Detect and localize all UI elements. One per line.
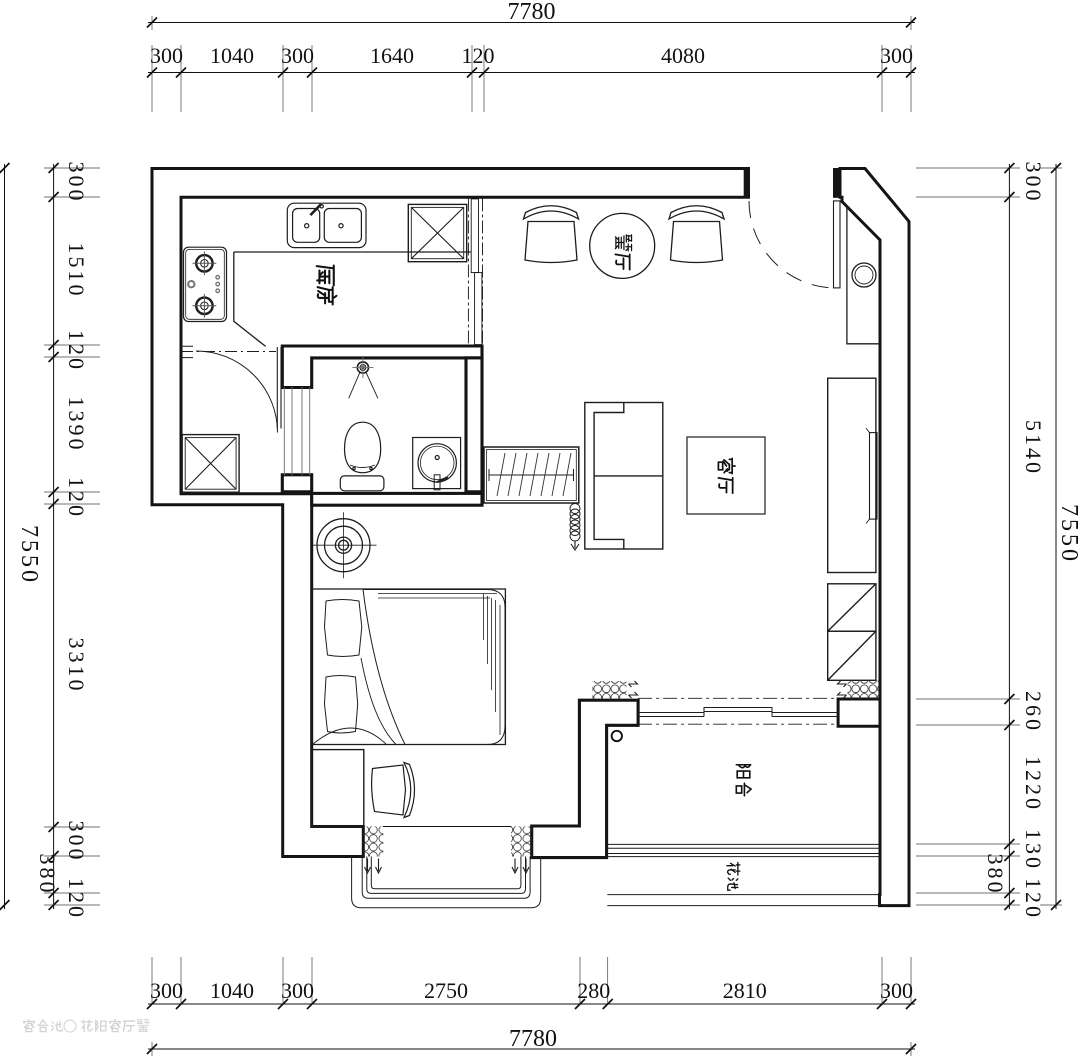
svg-text:280: 280 bbox=[577, 978, 610, 1003]
svg-text:7780: 7780 bbox=[509, 1026, 557, 1052]
svg-text:130: 130 bbox=[1021, 829, 1046, 871]
svg-text:1220: 1220 bbox=[1021, 756, 1046, 812]
svg-text:1390: 1390 bbox=[64, 397, 89, 453]
svg-text:7550: 7550 bbox=[16, 525, 42, 585]
svg-text:7550: 7550 bbox=[1056, 504, 1080, 564]
svg-text:120: 120 bbox=[64, 330, 89, 372]
svg-text:300: 300 bbox=[64, 162, 89, 204]
svg-text:5140: 5140 bbox=[1021, 420, 1046, 476]
svg-text:300: 300 bbox=[64, 821, 89, 863]
svg-text:300: 300 bbox=[1021, 162, 1046, 204]
svg-text:7780: 7780 bbox=[508, 0, 556, 25]
svg-text:120: 120 bbox=[64, 477, 89, 519]
svg-text:1040: 1040 bbox=[210, 43, 254, 68]
svg-text:300: 300 bbox=[880, 43, 913, 68]
svg-text:4080: 4080 bbox=[661, 43, 705, 68]
svg-text:380: 380 bbox=[983, 854, 1008, 896]
svg-text:300: 300 bbox=[150, 978, 183, 1003]
svg-text:300: 300 bbox=[880, 978, 913, 1003]
svg-text:300: 300 bbox=[281, 43, 314, 68]
svg-text:120: 120 bbox=[64, 878, 89, 920]
svg-text:3310: 3310 bbox=[64, 638, 89, 694]
svg-text:1510: 1510 bbox=[64, 243, 89, 299]
svg-text:380: 380 bbox=[35, 854, 60, 896]
svg-text:1640: 1640 bbox=[370, 43, 414, 68]
svg-text:1040: 1040 bbox=[210, 978, 254, 1003]
svg-text:300: 300 bbox=[150, 43, 183, 68]
svg-text:2810: 2810 bbox=[723, 978, 767, 1003]
svg-text:300: 300 bbox=[281, 978, 314, 1003]
svg-text:120: 120 bbox=[1021, 878, 1046, 920]
svg-text:2750: 2750 bbox=[424, 978, 468, 1003]
svg-text:120: 120 bbox=[462, 43, 495, 68]
svg-text:260: 260 bbox=[1021, 691, 1046, 733]
